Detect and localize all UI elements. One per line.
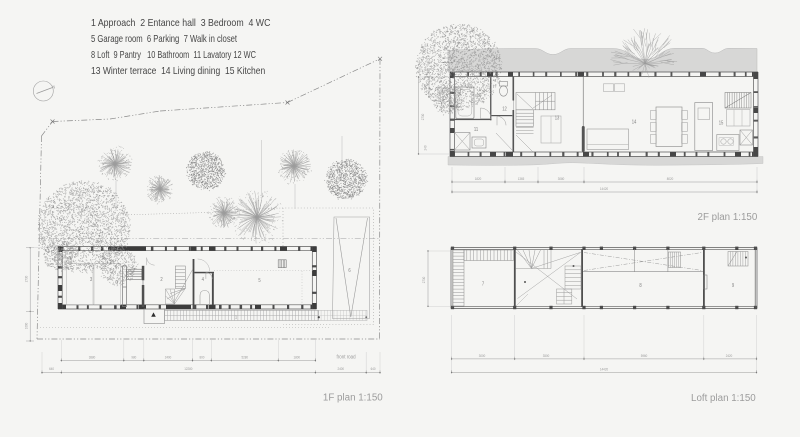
svg-text:3500: 3500: [543, 354, 550, 358]
svg-text:2730: 2730: [24, 276, 28, 283]
svg-text:3880: 3880: [89, 355, 96, 359]
svg-text:1 Approach 2 Entance hall 3: 1 Approach 2 Entance hall 3 Bedroom 4 WC: [91, 17, 270, 29]
svg-text:7: 7: [482, 281, 485, 287]
svg-text:8 Loft 9 Pantry 10 Bathroom: 8 Loft 9 Pantry 10 Bathroom 11 Lavatory …: [91, 49, 256, 61]
svg-text:13: 13: [555, 115, 560, 121]
svg-text:N: N: [53, 84, 56, 89]
svg-text:980: 980: [131, 355, 136, 359]
svg-text:14420: 14420: [600, 367, 608, 371]
svg-text:front road: front road: [337, 354, 356, 361]
svg-text:15: 15: [719, 120, 724, 126]
svg-text:2: 2: [160, 277, 163, 283]
svg-text:14420: 14420: [600, 187, 608, 191]
svg-text:640: 640: [371, 367, 376, 371]
svg-text:2730: 2730: [421, 114, 425, 121]
svg-text:5 Garage room 6 Parking 7 Wa: 5 Garage room 6 Parking 7 Walk in closet: [91, 33, 237, 44]
svg-text:8: 8: [639, 283, 642, 289]
svg-text:6: 6: [348, 268, 351, 274]
svg-text:Loft plan 1:150: Loft plan 1:150: [691, 393, 756, 404]
svg-text:2400: 2400: [338, 367, 345, 371]
svg-text:640: 640: [49, 367, 54, 371]
svg-text:12: 12: [502, 106, 507, 112]
svg-text:3080: 3080: [558, 177, 565, 181]
svg-text:2420: 2420: [726, 354, 733, 358]
svg-text:1365: 1365: [518, 177, 525, 181]
svg-text:240: 240: [423, 145, 427, 150]
svg-text:8020: 8020: [667, 177, 674, 181]
svg-text:2730: 2730: [422, 277, 426, 284]
svg-text:3: 3: [90, 277, 93, 283]
svg-text:12280: 12280: [184, 367, 192, 371]
svg-text:9: 9: [732, 283, 735, 289]
svg-text:4: 4: [202, 277, 205, 283]
svg-text:1800: 1800: [294, 355, 301, 359]
svg-text:1820: 1820: [475, 177, 482, 181]
svg-text:1600: 1600: [24, 323, 28, 330]
svg-text:13 Winter terrace 14 Living d: 13 Winter terrace 14 Living dining 15 Ki…: [91, 65, 265, 77]
svg-text:5960: 5960: [641, 354, 648, 358]
svg-text:14: 14: [632, 119, 637, 125]
svg-text:3000: 3000: [479, 354, 486, 358]
svg-text:11: 11: [474, 127, 479, 133]
svg-text:1F plan 1:150: 1F plan 1:150: [323, 393, 383, 404]
svg-text:800: 800: [199, 355, 204, 359]
svg-text:5280: 5280: [242, 355, 249, 359]
svg-text:2400: 2400: [165, 355, 172, 359]
svg-text:2F plan 1:150: 2F plan 1:150: [698, 212, 758, 223]
svg-text:5: 5: [258, 278, 261, 284]
